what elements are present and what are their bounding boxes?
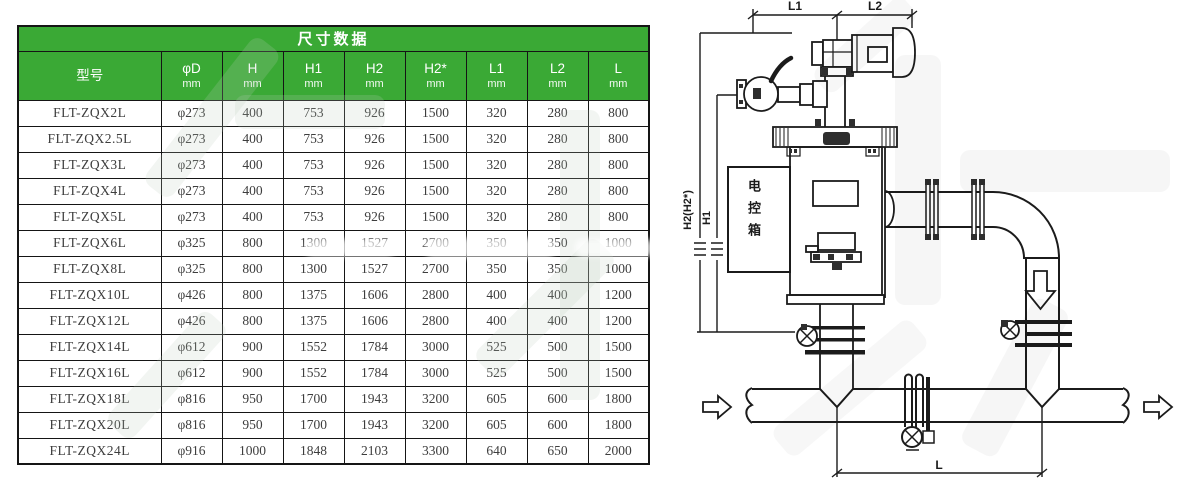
model-cell: FLT-ZQX2.5L (18, 126, 161, 152)
column-header: L1mm (466, 51, 527, 100)
table-row: FLT-ZQX12Lφ4268001375160628004004001200 (18, 308, 649, 334)
value-cell: 1300 (283, 256, 344, 282)
value-cell: 400 (222, 178, 283, 204)
value-cell: 926 (344, 178, 405, 204)
value-cell: 2800 (405, 308, 466, 334)
value-cell: 3000 (405, 334, 466, 360)
dim-label-l2: L2 (852, 0, 898, 13)
table-row: FLT-ZQX6Lφ3258001300152727003503501000 (18, 230, 649, 256)
dim-label-l1: L1 (772, 0, 818, 13)
value-cell: 280 (527, 152, 588, 178)
filter-drawing: L1 L2 H2(H2*) H1 L 电控箱 (660, 0, 1195, 494)
value-cell: 926 (344, 126, 405, 152)
model-cell: FLT-ZQX2L (18, 100, 161, 126)
column-header: Hmm (222, 51, 283, 100)
value-cell: 400 (466, 282, 527, 308)
value-cell: 1606 (344, 282, 405, 308)
value-cell: 800 (588, 178, 649, 204)
value-cell: 350 (527, 256, 588, 282)
drain-valve (902, 375, 934, 450)
flow-down-arrow-icon (1026, 271, 1055, 309)
value-cell: 320 (466, 100, 527, 126)
model-cell: FLT-ZQX4L (18, 178, 161, 204)
value-cell: 400 (527, 308, 588, 334)
flow-in-arrow-icon (703, 396, 731, 418)
value-cell: 1000 (588, 256, 649, 282)
value-cell: 753 (283, 126, 344, 152)
table-title-row: 尺寸数据 (18, 26, 649, 51)
value-cell: 600 (527, 412, 588, 438)
dimension-table: 尺寸数据 型号φDmmHmmH1mmH2mmH2*mmL1mmL2mmLmm F… (17, 25, 650, 465)
value-cell: φ426 (161, 308, 222, 334)
column-header: H1mm (283, 51, 344, 100)
value-cell: 400 (466, 308, 527, 334)
value-cell: 1800 (588, 386, 649, 412)
table-row: FLT-ZQX16Lφ6129001552178430005255001500 (18, 360, 649, 386)
value-cell: 280 (527, 204, 588, 230)
valve-handle (771, 58, 791, 81)
value-cell: 525 (466, 334, 527, 360)
value-cell: 2800 (405, 282, 466, 308)
table-title: 尺寸数据 (18, 26, 649, 51)
motor-end-cap (893, 28, 915, 77)
value-cell: 800 (222, 230, 283, 256)
model-cell: FLT-ZQX14L (18, 334, 161, 360)
value-cell: 605 (466, 386, 527, 412)
value-cell: φ273 (161, 126, 222, 152)
table-row: FLT-ZQX10Lφ4268001375160628004004001200 (18, 282, 649, 308)
value-cell: 400 (222, 152, 283, 178)
value-cell: 400 (222, 126, 283, 152)
value-cell: 350 (466, 230, 527, 256)
inner-bracket (818, 233, 855, 250)
value-cell: 926 (344, 152, 405, 178)
value-cell: φ612 (161, 360, 222, 386)
table-row: FLT-ZQX20Lφ8169501700194332006056001800 (18, 412, 649, 438)
filter-vessel (773, 75, 897, 389)
value-cell: φ612 (161, 334, 222, 360)
table-row: FLT-ZQX2.5Lφ2734007539261500320280800 (18, 126, 649, 152)
value-cell: 800 (222, 308, 283, 334)
table-row: FLT-ZQX8Lφ3258001300152727003503501000 (18, 256, 649, 282)
value-cell: 753 (283, 204, 344, 230)
value-cell: 3000 (405, 360, 466, 386)
table-row: FLT-ZQX3Lφ2734007539261500320280800 (18, 152, 649, 178)
value-cell: 1500 (405, 178, 466, 204)
value-cell: 1552 (283, 360, 344, 386)
value-cell: 2700 (405, 230, 466, 256)
value-cell: 320 (466, 126, 527, 152)
value-cell: 320 (466, 152, 527, 178)
value-cell: 1784 (344, 360, 405, 386)
value-cell: 400 (527, 282, 588, 308)
value-cell: 500 (527, 334, 588, 360)
value-cell: φ426 (161, 282, 222, 308)
filter-diagram-svg (660, 0, 1195, 494)
value-cell: 753 (283, 152, 344, 178)
value-cell: 950 (222, 412, 283, 438)
value-cell: 2103 (344, 438, 405, 464)
model-cell: FLT-ZQX10L (18, 282, 161, 308)
model-cell: FLT-ZQX8L (18, 256, 161, 282)
table-row: FLT-ZQX5Lφ2734007539261500320280800 (18, 204, 649, 230)
value-cell: 1527 (344, 230, 405, 256)
table-row: FLT-ZQX24Lφ91610001848210333006406502000 (18, 438, 649, 464)
column-header: L2mm (527, 51, 588, 100)
value-cell: 400 (222, 204, 283, 230)
value-cell: 1000 (222, 438, 283, 464)
value-cell: 350 (527, 230, 588, 256)
table-row: FLT-ZQX14Lφ6129001552178430005255001500 (18, 334, 649, 360)
value-cell: φ916 (161, 438, 222, 464)
value-cell: 1606 (344, 308, 405, 334)
column-header: φDmm (161, 51, 222, 100)
value-cell: φ273 (161, 100, 222, 126)
value-cell: φ816 (161, 412, 222, 438)
value-cell: 800 (222, 282, 283, 308)
value-cell: 1500 (588, 360, 649, 386)
value-cell: 800 (588, 100, 649, 126)
value-cell: φ325 (161, 230, 222, 256)
value-cell: 1375 (283, 308, 344, 334)
column-header: H2mm (344, 51, 405, 100)
value-cell: φ273 (161, 178, 222, 204)
control-box-label: 电控箱 (744, 179, 763, 245)
table-row: FLT-ZQX2Lφ2734007539261500320280800 (18, 100, 649, 126)
value-cell: 1848 (283, 438, 344, 464)
value-cell: 800 (588, 152, 649, 178)
top-valve (737, 58, 827, 111)
value-cell: 1500 (405, 204, 466, 230)
flow-out-arrow-icon (1144, 396, 1172, 418)
model-cell: FLT-ZQX20L (18, 412, 161, 438)
value-cell: 2700 (405, 256, 466, 282)
value-cell: 500 (527, 360, 588, 386)
dim-label-h1: H1 (701, 198, 713, 238)
value-cell: 1500 (405, 100, 466, 126)
model-cell: FLT-ZQX5L (18, 204, 161, 230)
value-cell: 1500 (405, 126, 466, 152)
value-cell: 926 (344, 204, 405, 230)
value-cell: 950 (222, 386, 283, 412)
model-cell: FLT-ZQX3L (18, 152, 161, 178)
dim-label-l: L (917, 458, 961, 472)
value-cell: 650 (527, 438, 588, 464)
value-cell: 1500 (405, 152, 466, 178)
table-row: FLT-ZQX4Lφ2734007539261500320280800 (18, 178, 649, 204)
value-cell: 1700 (283, 386, 344, 412)
elbow-inner (993, 227, 1026, 258)
pipe-break-left (746, 388, 752, 423)
drive-motor (812, 28, 915, 77)
value-cell: φ273 (161, 152, 222, 178)
value-cell: 3300 (405, 438, 466, 464)
table-body: FLT-ZQX2Lφ2734007539261500320280800FLT-Z… (18, 100, 649, 464)
value-cell: 320 (466, 178, 527, 204)
value-cell: 1000 (588, 230, 649, 256)
value-cell: 800 (588, 204, 649, 230)
value-cell: 1375 (283, 282, 344, 308)
model-cell: FLT-ZQX24L (18, 438, 161, 464)
value-cell: 926 (344, 100, 405, 126)
value-cell: 600 (527, 386, 588, 412)
column-header: Lmm (588, 51, 649, 100)
value-cell: 753 (283, 178, 344, 204)
value-cell: 1552 (283, 334, 344, 360)
value-cell: 605 (466, 412, 527, 438)
value-cell: 1943 (344, 386, 405, 412)
value-cell: 1200 (588, 308, 649, 334)
value-cell: 400 (222, 100, 283, 126)
value-cell: 1800 (588, 412, 649, 438)
value-cell: 3200 (405, 412, 466, 438)
value-cell: φ325 (161, 256, 222, 282)
main-pipe (746, 388, 1128, 423)
model-cell: FLT-ZQX16L (18, 360, 161, 386)
value-cell: 350 (466, 256, 527, 282)
vessel-window (813, 181, 858, 206)
value-cell: 525 (466, 360, 527, 386)
value-cell: 280 (527, 100, 588, 126)
pipe-flange (925, 179, 985, 240)
value-cell: 753 (283, 100, 344, 126)
value-cell: 280 (527, 126, 588, 152)
model-cell: FLT-ZQX6L (18, 230, 161, 256)
value-cell: 2000 (588, 438, 649, 464)
value-cell: 1200 (588, 282, 649, 308)
value-cell: 800 (222, 256, 283, 282)
blowdown-valve (797, 324, 865, 355)
value-cell: φ816 (161, 386, 222, 412)
value-cell: 640 (466, 438, 527, 464)
value-cell: 1700 (283, 412, 344, 438)
elbow-outer (993, 192, 1059, 258)
dim-label-h2: H2(H2*) (682, 179, 694, 241)
column-header: 型号 (18, 51, 161, 100)
value-cell: 1784 (344, 334, 405, 360)
value-cell: 900 (222, 334, 283, 360)
column-header: H2*mm (405, 51, 466, 100)
value-cell: 280 (527, 178, 588, 204)
vertical-pipe-valve (1001, 320, 1019, 339)
table-row: FLT-ZQX18Lφ8169501700194332006056001800 (18, 386, 649, 412)
value-cell: 800 (588, 126, 649, 152)
value-cell: 1500 (588, 334, 649, 360)
value-cell: 900 (222, 360, 283, 386)
value-cell: 320 (466, 204, 527, 230)
value-cell: 1300 (283, 230, 344, 256)
pipe-break-right (1123, 388, 1129, 423)
column-header-row: 型号φDmmHmmH1mmH2mmH2*mmL1mmL2mmLmm (18, 51, 649, 100)
value-cell: 1943 (344, 412, 405, 438)
value-cell: 3200 (405, 386, 466, 412)
value-cell: 1527 (344, 256, 405, 282)
model-cell: FLT-ZQX12L (18, 308, 161, 334)
model-cell: FLT-ZQX18L (18, 386, 161, 412)
value-cell: φ273 (161, 204, 222, 230)
